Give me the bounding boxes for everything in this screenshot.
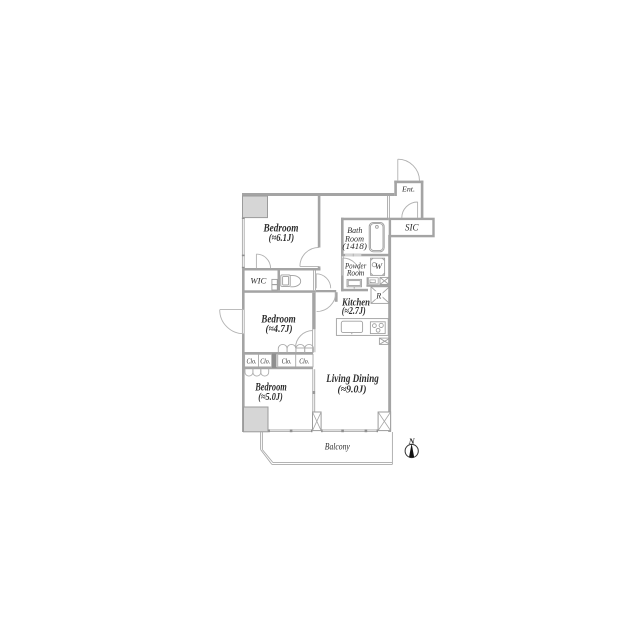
svg-text:(≈4.7J): (≈4.7J) bbox=[266, 324, 293, 335]
svg-text:(≈9.0J): (≈9.0J) bbox=[338, 385, 367, 396]
svg-text:Clo.: Clo. bbox=[247, 356, 257, 365]
svg-text:Ent.: Ent. bbox=[401, 185, 415, 194]
svg-text:Balcony: Balcony bbox=[325, 443, 351, 453]
svg-text:N: N bbox=[408, 436, 416, 446]
svg-text:R: R bbox=[375, 291, 381, 300]
svg-text:(1418): (1418) bbox=[342, 241, 367, 251]
svg-text:(≈6.1J): (≈6.1J) bbox=[269, 233, 295, 244]
svg-text:Clo.: Clo. bbox=[260, 356, 270, 365]
svg-text:Clo.: Clo. bbox=[299, 356, 309, 365]
svg-text:Clo.: Clo. bbox=[282, 356, 292, 365]
svg-text:Room: Room bbox=[346, 267, 364, 277]
svg-text:(≈2.7J): (≈2.7J) bbox=[342, 306, 366, 317]
svg-text:Living Dining: Living Dining bbox=[325, 371, 378, 385]
svg-text:WIC: WIC bbox=[250, 275, 266, 285]
svg-text:(≈5.0J): (≈5.0J) bbox=[258, 392, 283, 403]
svg-text:SIC: SIC bbox=[405, 223, 419, 233]
